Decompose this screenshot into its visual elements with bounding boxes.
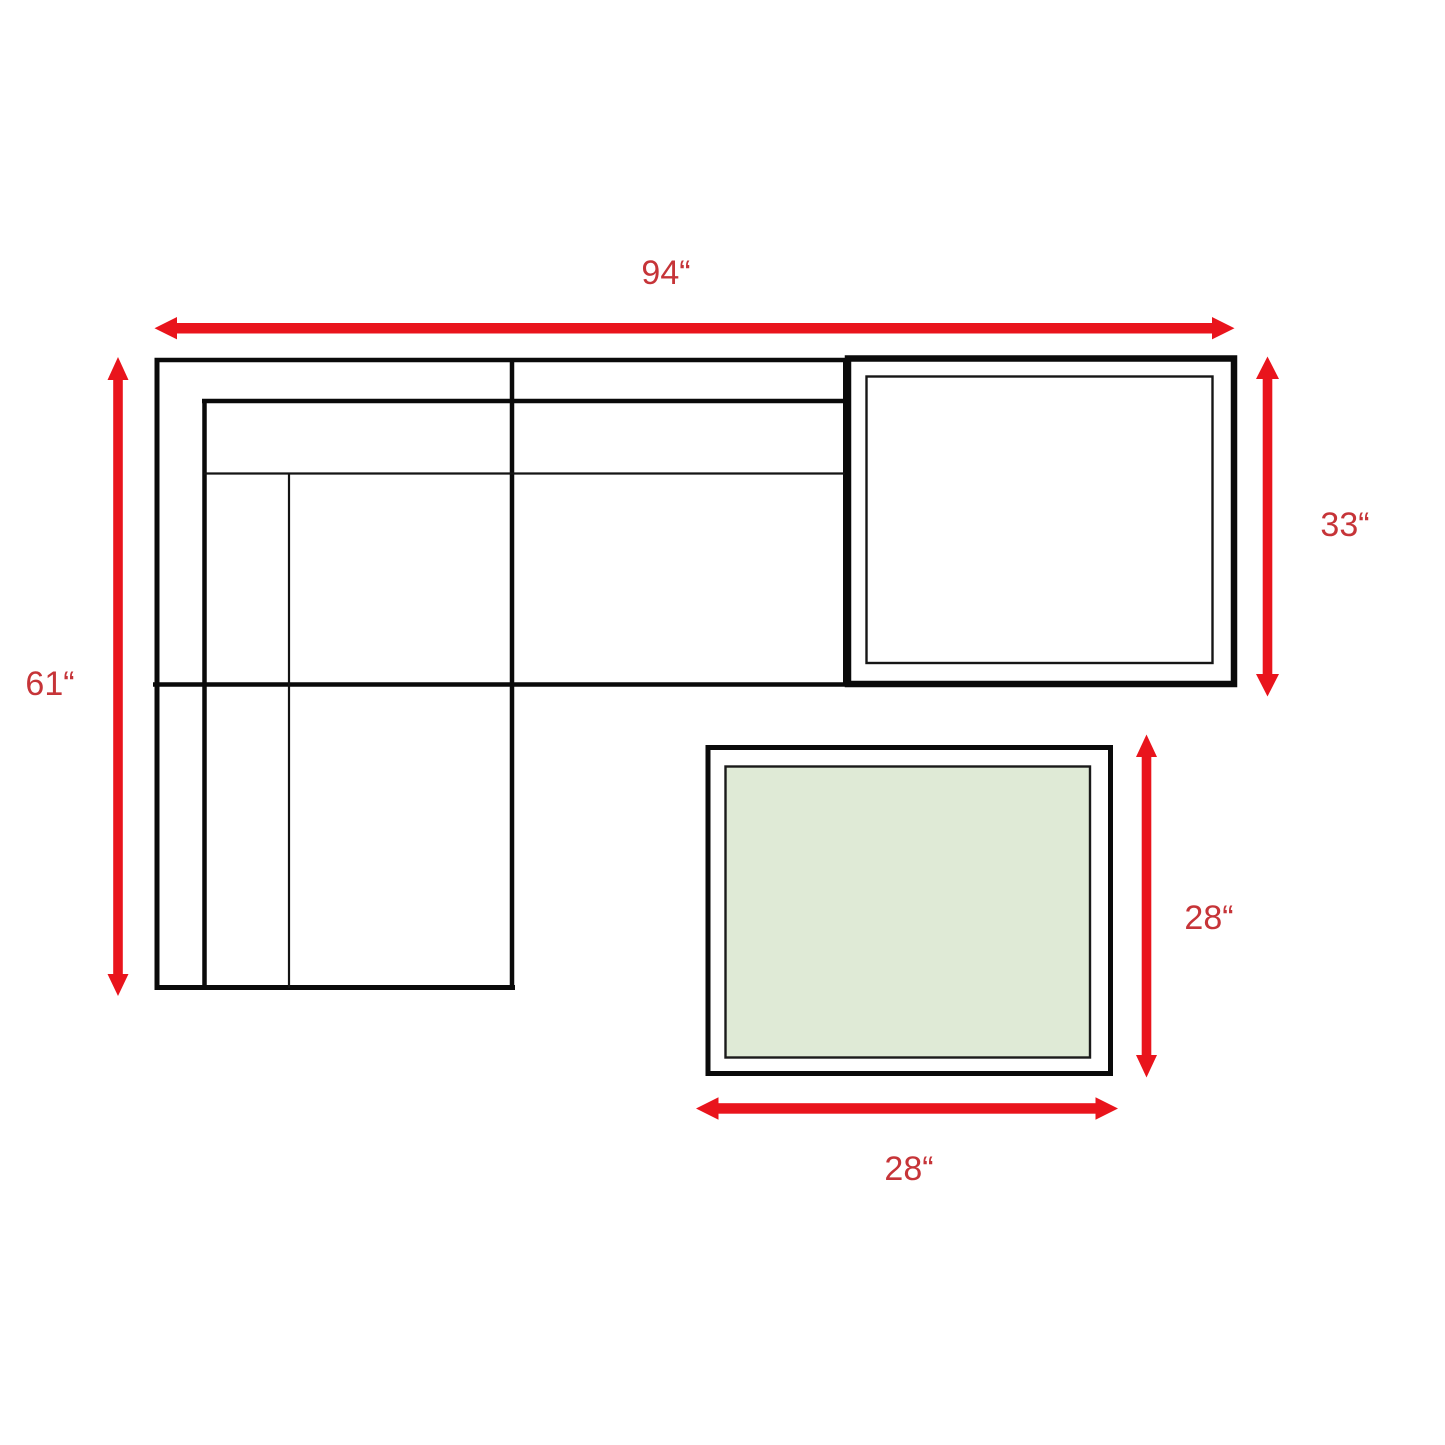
- svg-text:61“: 61“: [25, 665, 74, 703]
- svg-text:94“: 94“: [641, 254, 690, 292]
- svg-text:28“: 28“: [884, 1150, 933, 1188]
- svg-text:28“: 28“: [1184, 899, 1233, 937]
- svg-text:33“: 33“: [1320, 506, 1369, 544]
